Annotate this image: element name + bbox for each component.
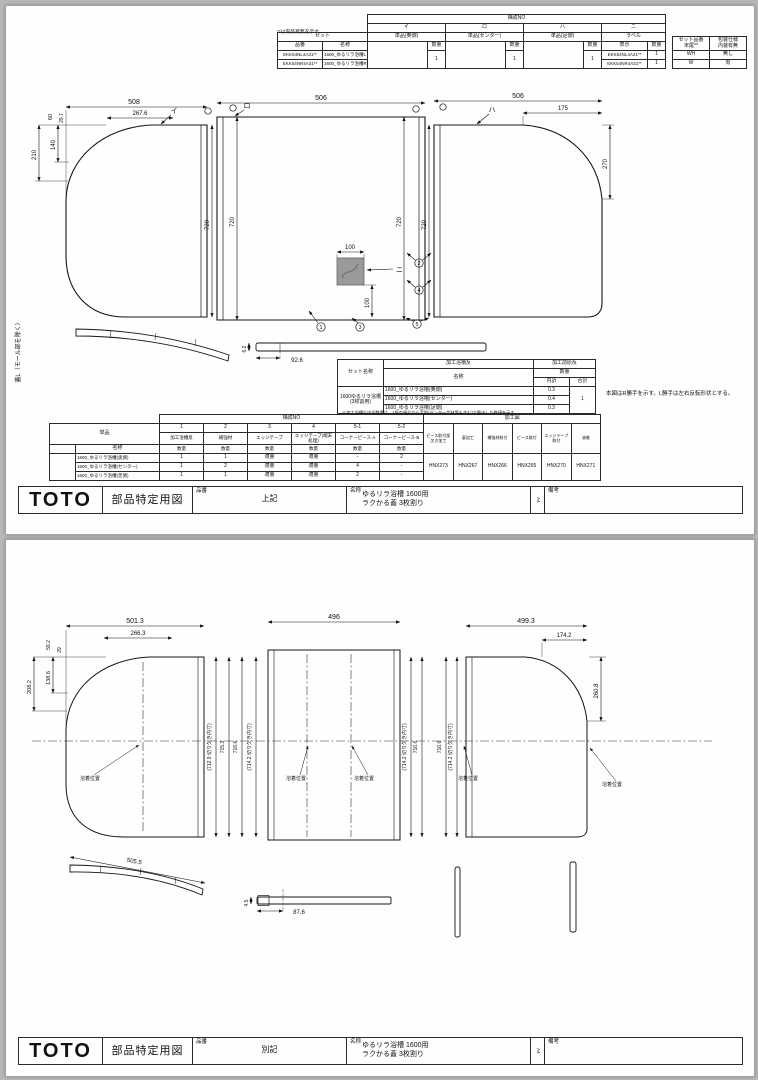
page-1: 508 267.6 60 29.7 140 210 720 720 720 72… [5,5,755,535]
dimension-texts: 501.3 266.3 59.2 29 138.6 208.2 496 499.… [27,614,600,916]
comp-name-6: コーナーピース-B [380,433,424,445]
cell: 4 [336,463,380,472]
qty-header: 数量 [160,445,204,454]
dim-100-v: 100 [365,297,371,308]
dim-6-2: 6.2 [242,345,248,352]
raw-sheet-table: セット名称 加工浴槽反 加工前原反 名称 数量 内訳 合計 1600ゆるリラ浴槽… [337,359,596,414]
col-ni: ニ [602,24,666,33]
title-block: TOTO 部品特定用図 品番別記 名称ゆるリラ浴槽 1600用ラクかる蓋 3枚割… [18,1037,743,1065]
callout-4: 4 [417,288,420,294]
junction-marker-4 [440,104,446,110]
weld-label-4: 溶着位置 [458,775,478,782]
dim-716-6: 716.6 [437,741,443,754]
dim-175: 175 [558,106,569,112]
set-name-header: セット名称 [338,360,384,387]
scale-note: A4 [535,1048,540,1054]
proc-code-2: HNX267 [453,454,483,481]
dimension-lines [34,622,601,911]
cell: - [380,463,424,472]
comp-row-name-2: 1600_ゆるリラ浴槽(センター) [76,463,160,472]
proc-code-4: HNX265 [512,454,542,481]
piece-label-ni: ニ [396,267,403,274]
hand-side-note: 蓋L（モール部を除く） [14,319,22,382]
page-2: 501.3 266.3 59.2 29 138.6 208.2 496 499.… [5,539,755,1077]
hinban-label: 品番 [196,1039,207,1045]
proc-name-3: 補強材取付 [483,424,513,454]
table-row: 1600ゆるリラ浴槽(3枚割用) 1600_ゆるリラ浴槽(奥側) 0.3 1 [338,387,596,396]
cell: 2 [380,454,424,463]
dim-92-6: 92.6 [291,358,303,364]
kako-mae-header: 加工前原反 [534,360,596,369]
title-block: TOTO 部品特定用図 品番上記 名称ゆるリラ浴槽 1600用ラクかる蓋 3枚割… [18,486,743,514]
cell: 適量 [292,463,336,472]
hinban-label: 品番 [196,488,207,494]
piece-label-ro: ロ [244,103,251,110]
dim-506-right: 506 [512,93,524,100]
raw-name-2: 1600_ゆるリラ浴槽(センター) [384,396,534,405]
dim-210: 210 [32,149,38,160]
set-hinban-1: EKK54NL4A31** [278,51,323,60]
proc-name-2: 裏加工 [453,424,483,454]
side-view-strips [76,329,486,361]
set-hinban-2: EKK54NR4A31** [278,60,323,69]
piece-label-ha: ハ [489,107,496,114]
dim-499-3: 499.3 [517,618,535,625]
comp-name-1: 加工浴槽反 [160,433,204,445]
component-process-table: 構成NO 加工図 単品 1 2 3 4 5-1 5-2 ピース取付部欠き加工 裏… [49,414,601,481]
meisho-header: 名称 [384,369,534,387]
meisho-label: 名称 [350,488,361,494]
junction-marker-3 [413,106,419,112]
proc-code-5: HNX270 [542,454,572,481]
cell: 2 [336,472,380,481]
dim-505-5: 505.5 [126,858,143,867]
proc-name-5: エッジテープ取付 [542,424,572,454]
tail-2: W [673,60,710,69]
weld-centerlines [32,654,712,837]
dim-60: 60 [48,114,54,120]
comp-name-3: エッジテープ [248,433,292,445]
comp-no-5-2: 5-2 [380,424,424,433]
qty-ro: 1 [506,51,524,69]
raw-name-1: 1600_ゆるリラ浴槽(奥側) [384,387,534,396]
naiso-2: 有 [710,60,747,69]
lid-pieces-outline [66,117,602,320]
packaging-spec-table: セット品番末尾** 包装仕様内装有無 WH 無し W 有 [672,36,747,69]
comp-no-3: 3 [248,424,292,433]
toto-logo: TOTO [19,1038,103,1065]
center-piece-outline [268,650,400,840]
proc-name-6: 溶着 [571,424,601,454]
qty-header: 数量 [292,445,336,454]
mirror-note: 本図はR勝手を示す。L勝手は左右反転形状とする。 [606,389,733,397]
proc-code-1: HNX273 [424,454,454,481]
set-composition-table: 構成NO イ ロ ハ ニ セット 単品(奥側) 単品(センター) 単品(足側) … [277,14,666,69]
table-row: W 有 [673,60,747,69]
table-row: 1600_ゆるリラ浴槽(奥側) 1 1 適量 適量 - 2 HNX273 HNX… [50,454,601,463]
dim-714-2-cut: (714.2 切り欠き内寸) [401,723,408,771]
dim-208-2: 208.2 [27,680,33,694]
cell: 1 [160,454,204,463]
name-ha: 単品(足側) [524,33,602,42]
kosei-no-header: 構成NO [160,415,424,424]
dim-716-6: 716.6 [233,741,239,754]
proc-code-3: HNX266 [483,454,513,481]
kako-zu-header: 加工図 [424,415,601,424]
comp-no-5-1: 5-1 [336,424,380,433]
dim-716-6: 716.6 [413,741,419,754]
cell: - [336,454,380,463]
junction-marker-1 [205,108,211,114]
dim-138-6: 138.6 [46,671,52,685]
doc-type: 部品特定用図 [103,1038,193,1065]
comp-no-4: 4 [292,424,336,433]
comp-no-2: 2 [204,424,248,433]
raw-qty-2: 0.4 [534,396,570,405]
dim-29-7: 29.7 [59,113,65,123]
cell: 1 [160,463,204,472]
label-disp-2: EKK54NR4A21** [602,60,648,69]
meisho-value: ゆるリラ浴槽 1600用ラクかる蓋 3枚割り [362,491,529,509]
dim-87-6: 87.6 [293,910,305,916]
dim-100-h: 100 [345,245,356,251]
name-ro: 単品(センター) [446,33,524,42]
kako-yokuso-header: 加工浴槽反 [384,360,534,369]
gokei-header: 合計 [570,378,596,387]
cell: 1 [204,472,248,481]
name-ni: ラベル [602,33,666,42]
label-qty-2: 1 [648,60,666,69]
dim-501-3: 501.3 [126,618,144,625]
weld-label-2: 溶着位置 [286,775,306,782]
label-disp-1: EKK54NL4A21** [602,51,648,60]
edge-view-strip-1 [455,867,460,937]
uchiwake-header: 内訳 [534,378,570,387]
qty-header: 数量 [380,445,424,454]
name-i: 単品(奥側) [368,33,446,42]
cell: 1 [160,472,204,481]
right-piece-outline [466,657,587,837]
set-header: セット [278,33,368,42]
weld-label-1: 溶着位置 [80,775,100,782]
scale-note: A4 [535,497,540,503]
dimension-texts: 508 267.6 60 29.7 140 210 720 720 720 72… [32,93,609,364]
piece-label-i: イ [171,108,178,115]
comp-row-name-3: 1600_ゆるリラ浴槽(足側) [76,472,160,481]
label-sticker-patch [337,258,364,285]
extension-lines [35,110,614,360]
lid-pieces-outline [66,650,587,840]
comp-name-4: エッジテープ(端末処理) [292,433,336,445]
right-piece-outline [434,125,602,317]
cell: 1 [204,454,248,463]
cell: 適量 [248,472,292,481]
set-meisho-1: 1600_ゆるリラ浴槽L [323,51,368,60]
label-qty-1: 1 [648,51,666,60]
proc-name-1: ピース取付部欠き加工 [424,424,454,454]
dim-29: 29 [57,647,63,653]
meisho-header: 名称 [76,445,160,454]
set-meisho-2: 1600_ゆるリラ浴槽R [323,60,368,69]
col-i: イ [368,24,446,33]
dim-720-c: 720 [397,216,403,227]
biko-label: 備考 [548,1039,559,1045]
dim-720-a: 720 [205,219,211,230]
disp-header: 表示 [602,42,648,51]
meisho-value: ゆるリラ浴槽 1600用ラクかる蓋 3枚割り [362,1042,529,1060]
dim-714-2-cut: (714.2 切り欠き内寸) [246,723,253,771]
col-ro: ロ [446,24,524,33]
cell: 適量 [248,463,292,472]
hinban-value: 別記 [194,1046,345,1055]
tanpin-header: 単品 [50,424,160,445]
qty-header-ha: 数量 [584,42,602,51]
cell: 適量 [248,454,292,463]
extension-lines [32,630,606,911]
qty-header: 数量 [204,445,248,454]
meisho-header: 名称 [323,42,368,51]
weld-label-3: 溶着位置 [354,775,374,782]
dim-715-3: 715.3 [220,741,226,754]
doc-type: 部品特定用図 [103,487,193,514]
qty-header-i: 数量 [428,42,446,51]
dim-266-3: 266.3 [130,631,146,637]
dim-174-2: 174.2 [556,633,572,639]
dim-720-b: 720 [230,216,236,227]
dim-720-d: 720 [422,219,428,230]
kosei-no-header: 構成NO [368,15,666,24]
piece-labels: イ ロ ハ ニ [161,103,496,274]
proc-name-4: ピース取付 [512,424,542,454]
side-view-strips [70,862,576,937]
left-piece-outline [66,657,204,837]
table-row: WH 無し [673,51,747,60]
dim-714-2-cut: (714.2 切り欠き内寸) [447,723,454,771]
naiso-1: 無し [710,51,747,60]
callout-1: 1 [319,325,322,331]
raw-total: 1 [570,387,596,414]
cell: 2 [204,463,248,472]
tail-1: WH [673,51,710,60]
dim-59-2: 59.2 [46,640,52,650]
proc-code-6: HNX271 [571,454,601,481]
edge-view-strip-2 [570,862,576,932]
col-ha: ハ [524,24,602,33]
callout-5: 5 [415,322,418,328]
junction-marker-2 [230,105,236,111]
hinban-value: 上記 [194,495,345,504]
comp-name-5: コーナーピース-A [336,433,380,445]
qty-header: 数量 [534,369,596,378]
comp-name-2: 補強材 [204,433,248,445]
callout-3: 3 [358,325,361,331]
cell: - [380,472,424,481]
qty-ha: 1 [584,51,602,69]
cell: 適量 [292,472,336,481]
weld-label-5: 溶着位置 [602,781,622,788]
dim-496: 496 [328,614,340,621]
dim-267-6: 267.6 [132,111,148,117]
raw-qty-3: 0.3 [534,405,570,414]
meisho-label: 名称 [350,1039,361,1045]
biko-label: 備考 [548,488,559,494]
left-piece-outline [66,125,207,317]
raw-qty-1: 0.3 [534,387,570,396]
qty-header-ni: 数量 [648,42,666,51]
dim-260-8: 260.8 [594,683,600,699]
lid-drawing-page2: 501.3 266.3 59.2 29 138.6 208.2 496 499.… [6,540,754,1076]
comp-row-name-1: 1600_ゆるリラ浴槽(奥側) [76,454,160,463]
qty-header: 数量 [248,445,292,454]
dim-508: 508 [128,99,140,106]
qty-header: 数量 [336,445,380,454]
dim-270: 270 [603,158,609,169]
cell: 適量 [292,454,336,463]
center-piece-outline [217,117,425,320]
qty-header-ro: 数量 [506,42,524,51]
hinban-header: 品番 [278,42,323,51]
dim-140: 140 [51,139,57,150]
callout-2: 2 [417,261,420,267]
dim-506-center: 506 [315,95,327,102]
dim-4-5: 4.5 [244,899,250,906]
qty-i: 1 [428,51,446,69]
comp-no-1: 1 [160,424,204,433]
toto-logo: TOTO [19,487,103,514]
dim-712-9-cut: (712.9 切り欠き内寸) [206,723,213,771]
